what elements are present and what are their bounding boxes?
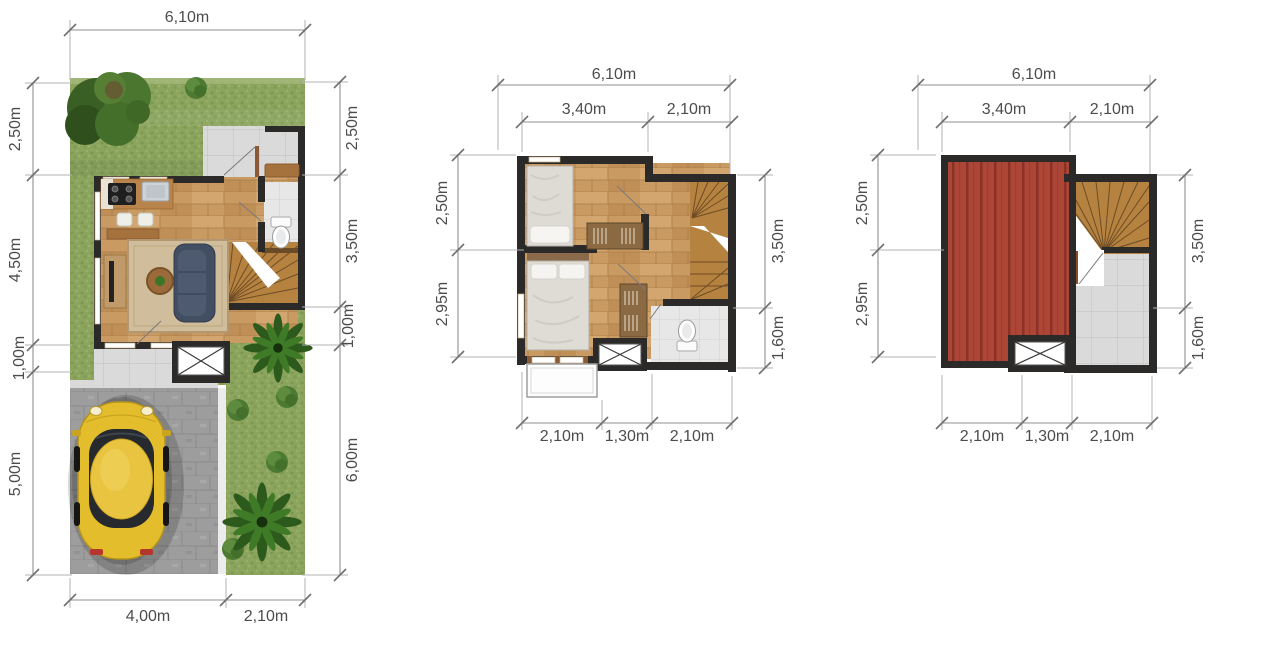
- side-mirror: [162, 430, 171, 436]
- dim-label: 5,00m: [7, 452, 24, 496]
- planter-box: [172, 341, 230, 383]
- dim-label: 1,30m: [1025, 428, 1069, 445]
- dim-label: 6,10m: [165, 9, 209, 26]
- second-floor-plan: 6,10m 3,40m 2,10m 2,50m 2,95m 3,50m 1,60…: [434, 66, 787, 445]
- floor-plan-sheet: 6,10m 2,50m 4,50m 1,00m 5,00m 2,50m 3,50…: [0, 0, 1280, 645]
- dim-label: 3,50m: [770, 219, 787, 263]
- dim-label: 3,40m: [982, 101, 1026, 118]
- toilet: [271, 217, 291, 248]
- dim-label: 2,50m: [344, 106, 361, 150]
- dim-label: 2,95m: [434, 282, 451, 326]
- floor2-staircase: [690, 182, 730, 300]
- floor2-planter-box: [593, 338, 647, 371]
- bush: [185, 77, 207, 99]
- site-plan: 6,10m 2,50m 4,50m 1,00m 5,00m 2,50m 3,50…: [7, 9, 361, 625]
- front-porch: [94, 349, 172, 387]
- kitchen: [101, 179, 173, 209]
- roof-staircase: [1076, 182, 1149, 254]
- dim-label: 6,10m: [1012, 66, 1056, 83]
- dim-label: 6,10m: [592, 66, 636, 83]
- toilet: [677, 320, 697, 351]
- dim-label: 1,00m: [340, 304, 357, 348]
- dim-label: 1,30m: [605, 428, 649, 445]
- car: [68, 395, 184, 575]
- dim-label: 2,50m: [854, 181, 871, 225]
- dim-label: 1,00m: [11, 336, 28, 380]
- roof-plan: 6,10m 3,40m 2,10m 2,50m 2,95m 3,50m 1,60…: [854, 66, 1207, 445]
- dim-label: 2,10m: [670, 428, 714, 445]
- dim-label: 2,10m: [1090, 428, 1134, 445]
- dim-label: 3,50m: [344, 219, 361, 263]
- palm-tree: [222, 482, 301, 561]
- bed-double: [527, 253, 589, 350]
- dim-label: 2,10m: [540, 428, 584, 445]
- dim-label: 3,40m: [562, 101, 606, 118]
- dim-label: 2,10m: [667, 101, 711, 118]
- headlight: [90, 407, 102, 416]
- roof-door: [1075, 250, 1104, 286]
- floor-plans-canvas: 6,10m 2,50m 4,50m 1,00m 5,00m 2,50m 3,50…: [0, 0, 1280, 645]
- taillight: [90, 549, 103, 555]
- bush: [266, 451, 288, 473]
- bush: [227, 399, 249, 421]
- dim-label: 2,50m: [434, 181, 451, 225]
- bed-single: [527, 166, 573, 246]
- dim-label: 6,00m: [344, 438, 361, 482]
- palm-tree: [243, 313, 312, 382]
- bush: [276, 386, 298, 408]
- tv: [109, 261, 114, 302]
- headlight: [141, 407, 153, 416]
- tv-console: [104, 255, 126, 308]
- dim-label: 2,10m: [1090, 101, 1134, 118]
- dim-label: 2,50m: [7, 107, 24, 151]
- wardrobe: [587, 223, 643, 249]
- dim-label: 1,60m: [1190, 316, 1207, 360]
- balcony: [527, 364, 597, 397]
- dim-label: 2,95m: [854, 282, 871, 326]
- coffee-table: [147, 268, 173, 294]
- side-mirror: [72, 430, 81, 436]
- dim-label: 3,50m: [1190, 219, 1207, 263]
- dim-label: 2,10m: [960, 428, 1004, 445]
- roof-planter-box: [1008, 335, 1072, 372]
- dim-label: 4,50m: [7, 238, 24, 282]
- sofa: [174, 244, 215, 322]
- patio-bench: [265, 164, 299, 177]
- dim-label: 4,00m: [126, 608, 170, 625]
- taillight: [140, 549, 153, 555]
- dim-label: 1,60m: [770, 316, 787, 360]
- dim-label: 2,10m: [244, 608, 288, 625]
- stove: [108, 183, 136, 205]
- wardrobe: [620, 284, 647, 337]
